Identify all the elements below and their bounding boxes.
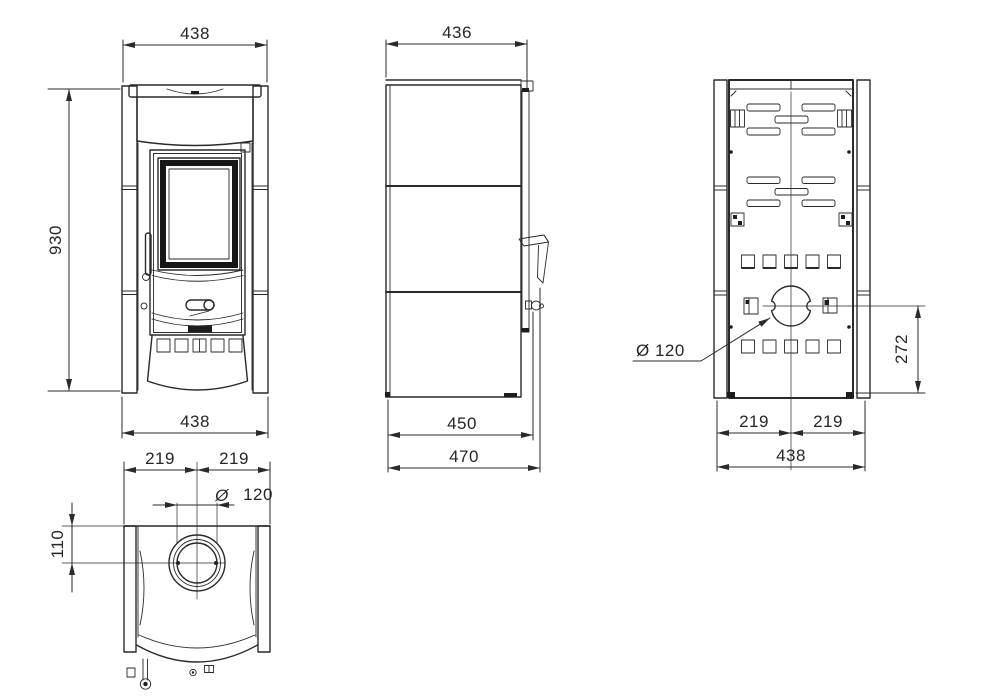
side-door-edge-bottom: [522, 328, 529, 333]
back-dim-width: 438: [717, 446, 865, 467]
front-cap-latch: [191, 91, 199, 94]
vent-slot: [157, 339, 170, 352]
front-door-frame-inner: [154, 154, 242, 333]
side-depth-inner-label: 450: [447, 414, 477, 433]
top-half-width-left-label: 219: [145, 449, 175, 468]
vent-slot: [802, 104, 835, 111]
bracket-bolt: [841, 215, 845, 219]
front-upper-panel: [137, 97, 253, 146]
vent-slot: [802, 177, 835, 184]
back-bracket-flue-left: [744, 298, 758, 314]
top-front-inner-curve: [139, 635, 255, 648]
bracket-bolt: [733, 215, 737, 219]
callout-leader: [701, 318, 770, 361]
bracket-frame: [731, 110, 745, 127]
side-dim-depth-overall: 470: [388, 288, 540, 472]
side-foot-back: [504, 393, 517, 397]
front-stove-body: [122, 85, 268, 393]
side-width-top-label: 436: [442, 23, 472, 42]
extension-lines: [386, 40, 527, 88]
drawer-handle-bar: [186, 300, 214, 310]
front-ash-slot: [188, 326, 212, 333]
vent-slot: [802, 128, 835, 135]
latch-pin-center: [143, 682, 147, 686]
drawing-sheet: { "drawing": { "background_color": "#fff…: [0, 0, 1000, 700]
front-glass-surround: [158, 158, 240, 270]
side-door-edge: [522, 91, 529, 332]
front-door-lower-curves: [152, 270, 243, 281]
back-flue-callout: Ø 120: [633, 318, 770, 361]
square-knockout: [828, 340, 841, 353]
front-door-glass: [169, 169, 229, 259]
front-lock-pin: [141, 303, 147, 309]
knob-base: [526, 301, 532, 309]
top-right-column: [258, 526, 270, 652]
side-door-edge-top: [522, 88, 529, 92]
bracket-bolt: [846, 221, 850, 225]
back-column-joints: [714, 186, 870, 295]
back-foot-right: [846, 392, 854, 398]
side-door-handle: [519, 235, 549, 283]
side-body-outline: [386, 85, 521, 397]
back-bracket-top-right: [838, 110, 852, 127]
front-height-label: 930: [46, 225, 65, 255]
square-knockout: [742, 255, 755, 268]
back-dim-flue-height: 272: [856, 306, 925, 393]
front-width-top-label: 438: [180, 24, 210, 43]
vent-slot: [775, 189, 808, 196]
top-half-width-right-label: 219: [219, 449, 249, 468]
square-knockout: [828, 255, 841, 268]
front-width-bottom-label: 438: [180, 412, 210, 431]
side-depth-overall-label: 470: [449, 447, 479, 466]
vent-slot: [747, 104, 780, 111]
bracket-frame: [731, 213, 744, 226]
front-dim-width-top: 438: [123, 24, 267, 82]
stove-technical-drawing: 438 930 438: [0, 0, 1000, 700]
front-door-wave-lines: [152, 313, 243, 326]
front-base-skirt: [148, 336, 248, 390]
latch-block: [127, 668, 135, 677]
back-flue-height-label: 272: [892, 334, 911, 364]
side-dim-width-top: 436: [386, 23, 527, 88]
square-knockout: [806, 340, 819, 353]
back-flue-label: Ø 120: [636, 341, 685, 360]
back-bracket-mid-left: [731, 213, 744, 226]
bracket-bolt: [825, 300, 830, 305]
latch-arm: [143, 659, 148, 680]
top-door-latch: [127, 659, 151, 689]
side-panel-joints: [386, 186, 521, 292]
back-width-label: 438: [776, 446, 806, 465]
back-view: Ø 120 272 219 219 438: [633, 80, 925, 471]
back-half-width-right-label: 219: [813, 412, 843, 431]
front-view: 438 930 438: [46, 24, 268, 438]
back-foot-left: [727, 392, 735, 398]
vent-slot: [747, 177, 780, 184]
side-view: 436 450 470: [385, 23, 549, 472]
vent-slot: [229, 339, 242, 352]
vent-slot: [175, 339, 188, 352]
square-knockout: [742, 340, 755, 353]
back-bracket-mid-right: [839, 213, 852, 226]
vent-slot: [747, 128, 780, 135]
extension-lines: [123, 40, 267, 82]
back-half-width-left-label: 219: [739, 412, 769, 431]
bracket-lines: [842, 110, 847, 127]
drawer-handle-tail: [190, 311, 209, 316]
vent-slot: [802, 200, 835, 207]
back-bracket-top-left: [731, 110, 745, 127]
top-flue-symbol-label: Ø: [214, 486, 230, 505]
front-left-column: [122, 86, 137, 393]
front-dim-height: 930: [46, 89, 120, 391]
panel-screw: [847, 150, 851, 154]
top-front-knob-center: [192, 671, 194, 673]
panel-screw: [847, 325, 851, 329]
top-back-offset-label: 110: [48, 530, 67, 559]
front-dim-width-bottom: 438: [122, 397, 268, 438]
square-knockout: [763, 255, 776, 268]
front-door-glass-frame: [163, 163, 235, 265]
back-panel-top-seam: [729, 81, 853, 89]
back-bracket-flue-right: [823, 298, 837, 313]
back-right-column: [857, 80, 870, 398]
front-right-column: [253, 86, 268, 393]
front-vent-grid: [157, 339, 242, 352]
panel-screw: [729, 325, 733, 329]
top-front-clip: [205, 666, 214, 673]
square-knockout: [806, 255, 819, 268]
top-stove-body: [124, 526, 270, 689]
square-knockout: [763, 340, 776, 353]
bracket-bolt: [738, 221, 742, 225]
top-left-column: [124, 526, 136, 652]
vent-slot: [211, 339, 224, 352]
back-left-column: [714, 80, 727, 398]
bracket-frame: [839, 213, 852, 226]
top-dim-flue-diameter: Ø 120: [153, 485, 273, 543]
panel-screw: [729, 150, 733, 154]
side-foot-front: [385, 392, 390, 397]
front-drawer-handle: [186, 300, 214, 316]
front-column-joints: [122, 186, 268, 295]
bracket-frame: [838, 110, 852, 127]
top-flue-diameter-label: 120: [243, 485, 273, 504]
vent-slot: [747, 200, 780, 207]
front-door: [141, 143, 250, 335]
side-stove-body: [385, 80, 549, 397]
top-view: 219 219 Ø 120 110: [48, 449, 273, 689]
bracket-lines: [735, 110, 740, 127]
bracket-bolt: [746, 300, 750, 304]
vent-slot: [775, 116, 808, 123]
top-flue-outlet: [169, 529, 225, 599]
handle-top-face: [519, 235, 549, 246]
drawer-handle-knob: [204, 300, 214, 310]
side-air-knob: [526, 301, 544, 310]
